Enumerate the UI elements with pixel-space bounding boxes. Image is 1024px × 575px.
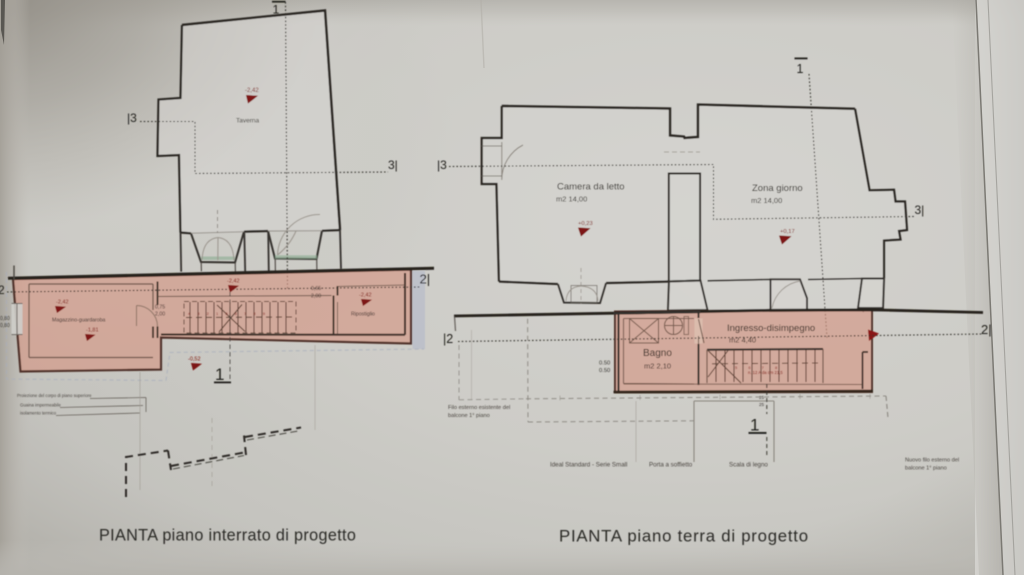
- svg-text:1: 1: [797, 62, 804, 76]
- svg-text:m2 14,00: m2 14,00: [751, 196, 782, 205]
- svg-text:m2 2,10: m2 2,10: [644, 362, 671, 371]
- svg-text:2|: 2|: [420, 272, 431, 287]
- svg-text:balcone 1° piano: balcone 1° piano: [905, 466, 947, 472]
- svg-text:+0,23: +0,23: [578, 221, 593, 227]
- svg-text:Porta a soffietto: Porta a soffietto: [649, 462, 693, 469]
- svg-text:Filo esterno esistente del: Filo esterno esistente del: [448, 405, 510, 411]
- svg-text:+0,17: +0,17: [780, 229, 795, 235]
- svg-text:1: 1: [273, 3, 280, 17]
- svg-text:25: 25: [759, 402, 765, 407]
- svg-text:Ingresso-disimpegno: Ingresso-disimpegno: [727, 323, 815, 334]
- svg-text:-2,42: -2,42: [359, 293, 372, 299]
- svg-text:Nuovo filo esterno del: Nuovo filo esterno del: [905, 458, 959, 464]
- svg-text:PIANTA piano terra di progetto: PIANTA piano terra di progetto: [559, 527, 809, 546]
- svg-text:m2 4,40: m2 4,40: [729, 336, 756, 345]
- svg-text:3|: 3|: [915, 203, 925, 217]
- svg-text:balcone 1° piano: balcone 1° piano: [448, 413, 490, 419]
- svg-text:-2,42: -2,42: [227, 279, 240, 285]
- svg-text:3|: 3|: [388, 158, 398, 172]
- svg-text:5 6 7 8: 5 6 7 8: [735, 365, 782, 370]
- svg-text:2|: 2|: [981, 322, 992, 337]
- svg-text:Zona giorno: Zona giorno: [752, 183, 803, 194]
- svg-text:Proiezione del corpo di piano: Proiezione del corpo di piano superiore: [17, 393, 92, 398]
- svg-text:0,80: 0,80: [0, 316, 10, 322]
- svg-text:1: 1: [215, 365, 224, 384]
- svg-text:25: 25: [759, 395, 765, 400]
- svg-text:Scala di legno: Scala di legno: [729, 462, 768, 469]
- svg-text:Magazzino-guardaroba: Magazzino-guardaroba: [52, 318, 105, 324]
- svg-text:Taverna: Taverna: [236, 118, 260, 125]
- svg-text:-0,52: -0,52: [188, 357, 201, 363]
- svg-text:0,80: 0,80: [0, 323, 10, 329]
- svg-text:-1,81: -1,81: [86, 328, 99, 334]
- svg-text:0.50: 0.50: [599, 361, 610, 367]
- svg-text:Camera da letto: Camera da letto: [557, 182, 625, 193]
- svg-text:m2 14,00: m2 14,00: [556, 195, 587, 204]
- svg-text:1: 1: [750, 416, 759, 435]
- svg-text:n. 12 A da cm 21,5: n. 12 A da cm 21,5: [748, 370, 783, 375]
- svg-text:2,00: 2,00: [155, 312, 165, 318]
- svg-text:2,00: 2,00: [311, 294, 321, 300]
- svg-text:4 3 2 1 5 6 7 8 9: 4 3 2 1 5 6 7 8 9: [188, 311, 268, 316]
- svg-text:0.50: 0.50: [599, 368, 610, 374]
- svg-text:-2,42: -2,42: [245, 88, 259, 94]
- svg-text:Bagno: Bagno: [643, 348, 672, 359]
- svg-text:0,75: 0,75: [155, 305, 165, 311]
- svg-text:-2,42: -2,42: [56, 300, 69, 306]
- svg-text:|2: |2: [443, 332, 453, 346]
- svg-text:isolamento termico: isolamento termico: [20, 411, 57, 416]
- svg-text:PIANTA piano interrato di prog: PIANTA piano interrato di progetto: [99, 527, 356, 545]
- svg-text:Ripostiglio: Ripostiglio: [351, 312, 375, 318]
- svg-text:|3: |3: [127, 111, 137, 125]
- svg-text:Guaina impermeabile: Guaina impermeabile: [20, 403, 61, 408]
- svg-text:|3: |3: [437, 158, 447, 172]
- svg-text:2: 2: [0, 283, 5, 297]
- svg-text:Ideal Standard - Serie Small: Ideal Standard - Serie Small: [550, 462, 627, 469]
- svg-text:0,65: 0,65: [311, 286, 321, 292]
